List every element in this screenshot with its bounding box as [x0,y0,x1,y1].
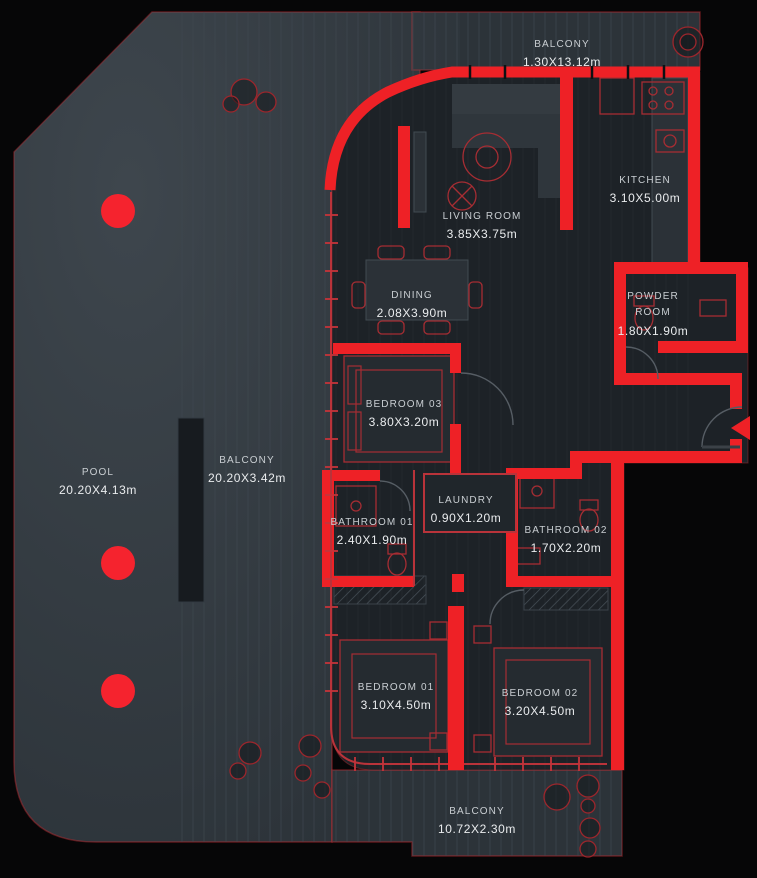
bed-02 [494,648,602,756]
plant-icon [230,763,246,779]
plant-icon [680,34,696,50]
plant-icon [581,799,595,813]
tree-marker [101,546,135,580]
floor-plan-drawing [0,0,757,878]
plant-icon [580,841,596,857]
tree-marker [101,194,135,228]
bed-01 [340,640,448,752]
floor-plan-canvas: BALCONY 1.30X13.12m KITCHEN 3.10X5.00m L… [0,0,757,878]
sofa-seat [452,114,566,148]
plant-icon [580,818,600,838]
plant-icon [239,742,261,764]
sofa [452,84,566,114]
plant-icon [295,765,311,781]
planter-box [178,418,204,602]
plant-icon [544,784,570,810]
plant-icon [299,735,321,757]
plant-icon [577,775,599,797]
wardrobe [524,588,608,610]
plant-icon [314,782,330,798]
plant-icon [256,92,276,112]
plant-icon [223,96,239,112]
laundry-enclosure [424,474,516,532]
dining-table [366,260,468,320]
tree-marker [101,674,135,708]
tv-console [414,132,426,212]
